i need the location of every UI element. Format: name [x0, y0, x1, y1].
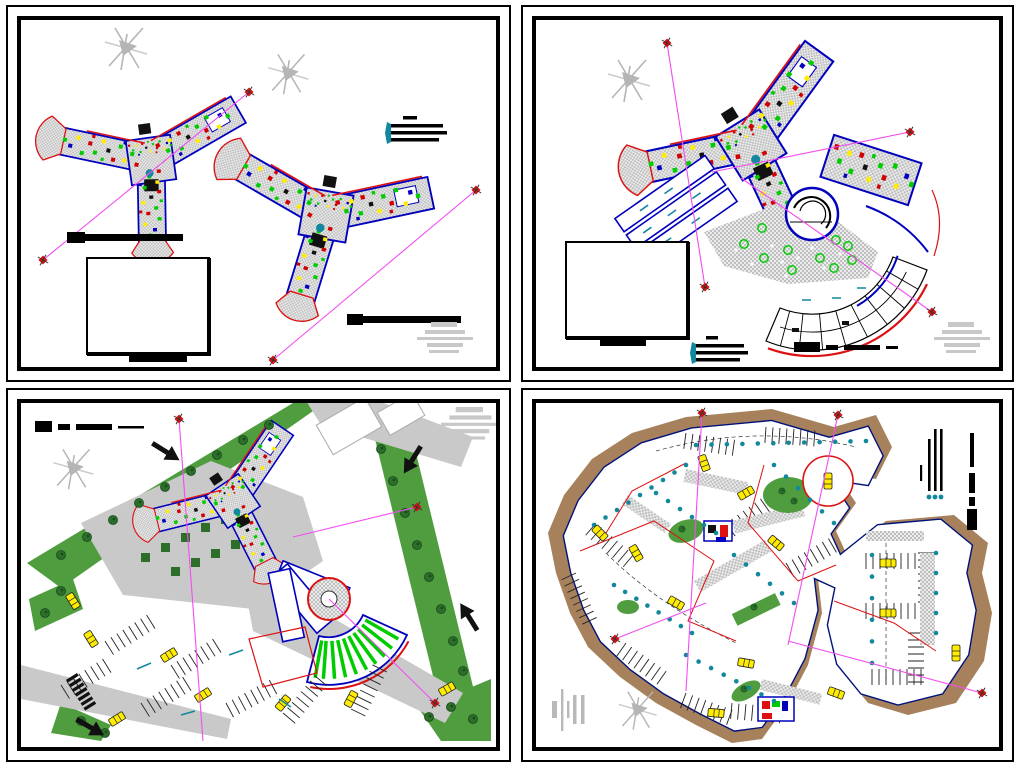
key-legend	[385, 116, 447, 144]
north-arrow-icon	[268, 54, 308, 94]
sheet-border-frame	[532, 399, 1003, 751]
sheet-floor-plans	[6, 5, 511, 382]
basement-plan-drawing	[536, 403, 999, 747]
sheet-border-frame	[17, 16, 500, 371]
scale-bar	[35, 421, 144, 432]
drawing-set-canvas	[0, 0, 1033, 773]
approval-stamp	[934, 322, 990, 353]
empty-title-block	[566, 242, 688, 346]
building-plan-right	[183, 129, 441, 343]
site-plan-drawing	[21, 403, 496, 747]
north-arrow-icon	[53, 449, 93, 489]
building-plan-right-lobe	[820, 135, 921, 205]
floor-plan-fan-drawing	[536, 20, 999, 367]
site-curve	[866, 206, 928, 252]
sheet-border-frame	[17, 399, 500, 751]
approval-stamp	[417, 322, 473, 353]
gray-bar-stamp	[552, 689, 585, 731]
sheet-basement-parking	[521, 388, 1014, 762]
bar-legend	[920, 429, 977, 530]
north-arrow-icon	[105, 28, 147, 70]
floor-plans-drawing	[21, 20, 496, 367]
core-block	[704, 521, 732, 542]
sheet-border-frame	[532, 16, 1003, 371]
empty-title-block	[87, 258, 209, 362]
spiral-ramp	[786, 188, 838, 240]
sheet-floor-plan-fan	[521, 5, 1014, 382]
north-arrow-icon	[608, 60, 650, 102]
site-curve-red	[932, 190, 940, 256]
building-plan-left	[26, 86, 264, 281]
key-legend	[690, 336, 748, 364]
sheet-site-plan	[6, 388, 511, 762]
